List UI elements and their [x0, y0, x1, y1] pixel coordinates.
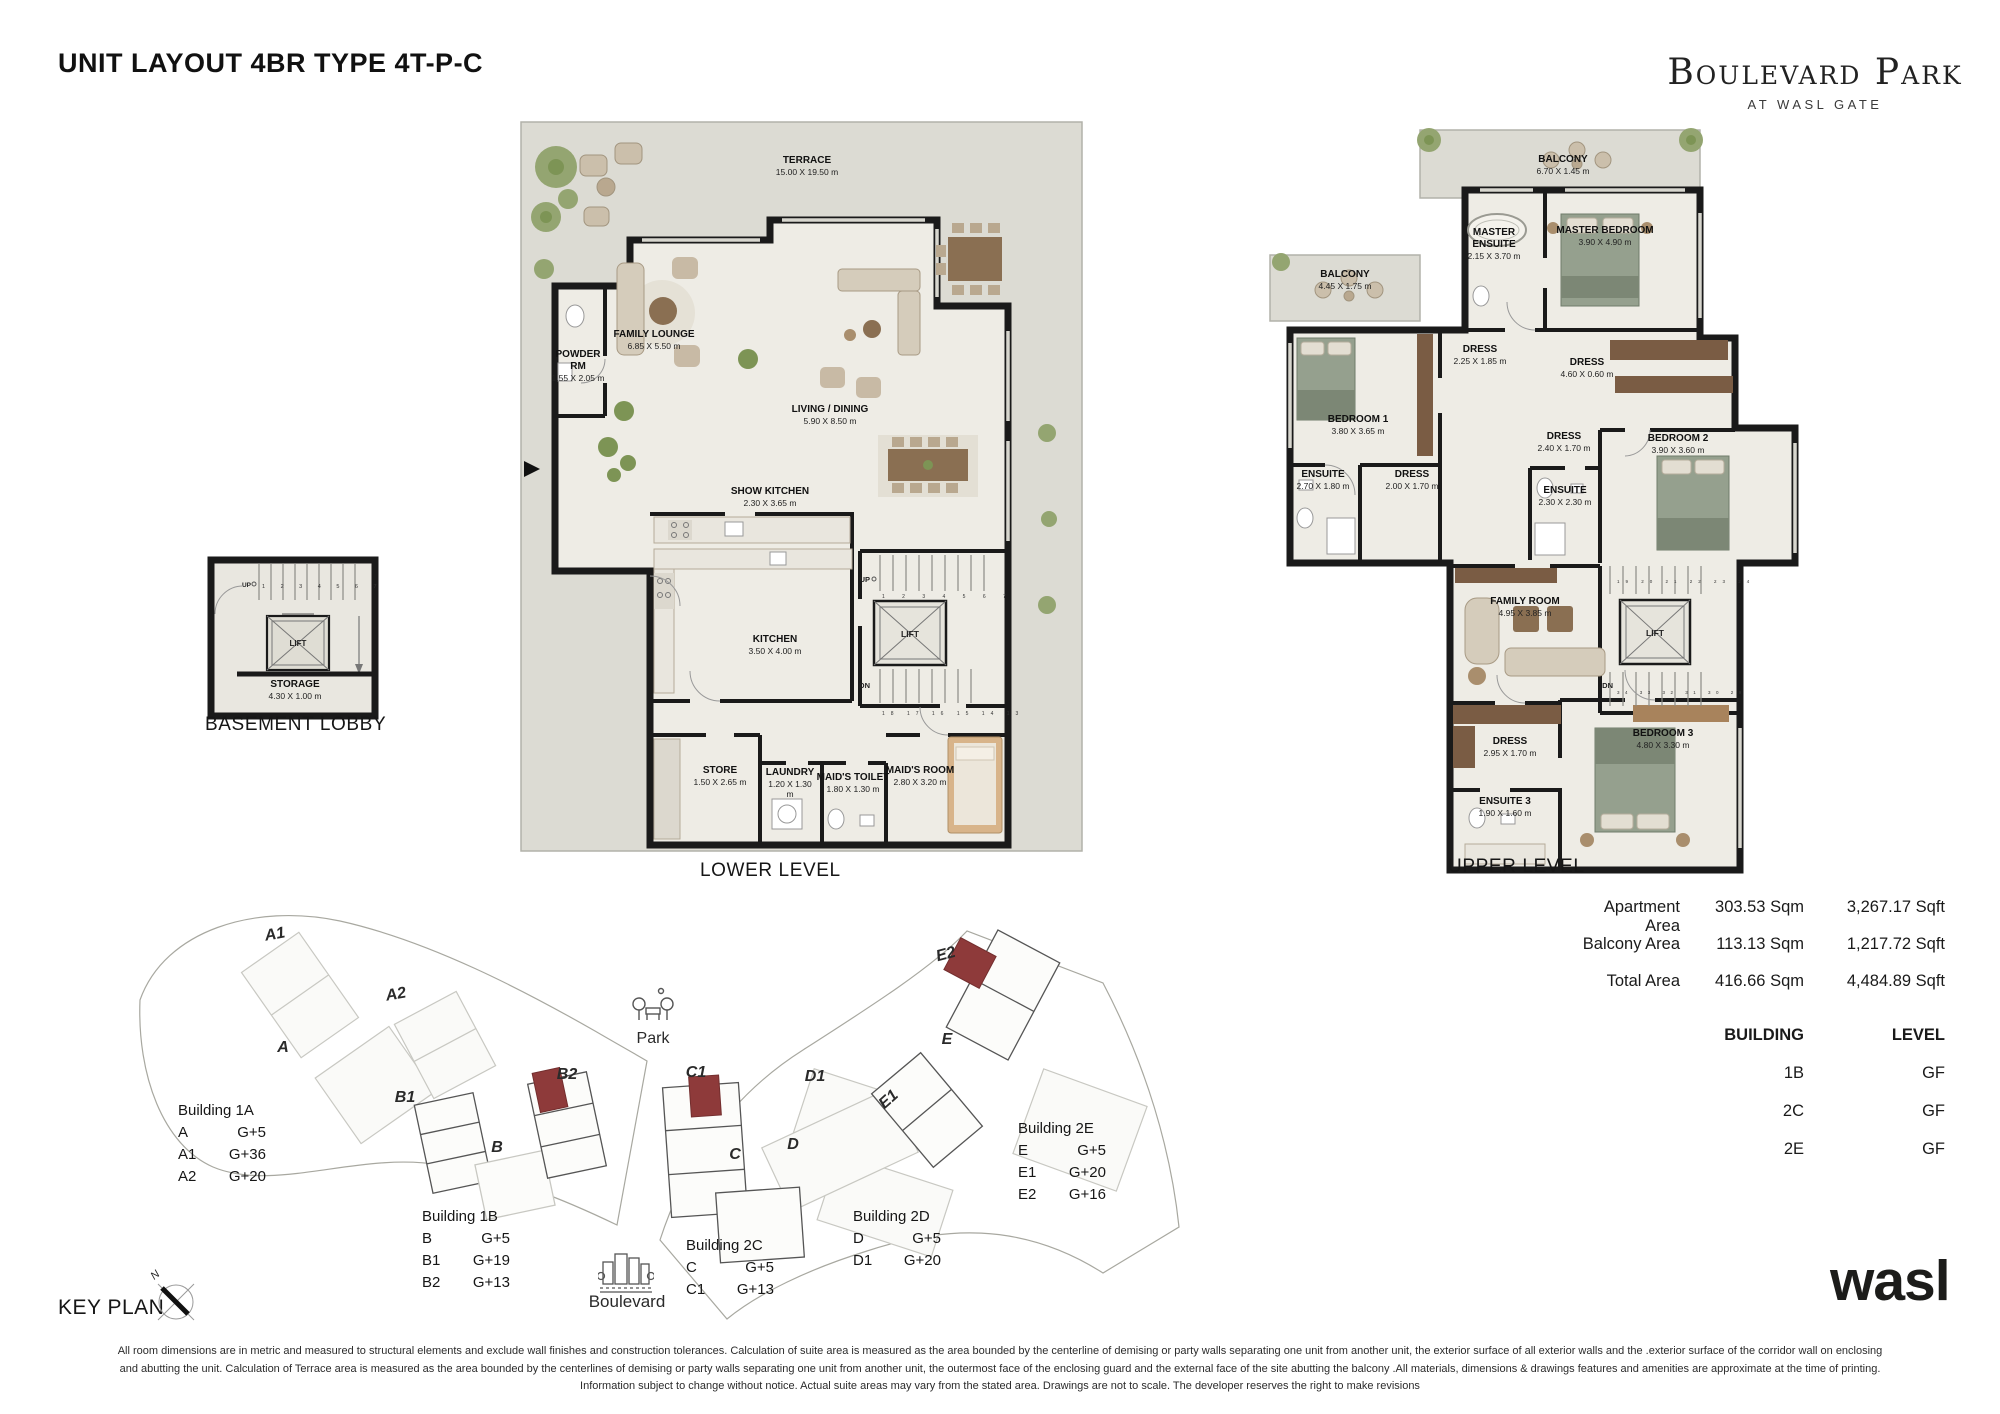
balcony-left-area	[1270, 255, 1420, 321]
map-label-d: D	[787, 1136, 799, 1154]
bed-1	[1297, 338, 1355, 420]
lift-label: LIFT	[901, 629, 920, 639]
laundry-washer	[772, 799, 802, 829]
north-label: N	[148, 1268, 162, 1282]
lower-level-drawing: 1 2 3 4 5 6 7 LIFT 18 17 16 15 14 13 UP …	[520, 121, 1083, 852]
lower-level-caption: LOWER LEVEL	[700, 860, 841, 882]
area-label: Total Area	[1580, 972, 1680, 991]
building-row: 2C GF	[1580, 1102, 1945, 1122]
map-label-e: E	[942, 1031, 953, 1049]
map-label-a2: A2	[384, 984, 407, 1005]
area-sqm: 113.13 Sqm	[1682, 935, 1804, 954]
disclaimer-line-2: and abutting the unit. Calculation of Te…	[40, 1361, 1960, 1379]
upper-dn-label: DN	[1602, 681, 1613, 690]
legend-title: Building 2E	[1018, 1118, 1106, 1140]
dn-label: DN	[859, 681, 870, 690]
map-label-b: B	[491, 1139, 503, 1157]
level-cell: GF	[1805, 1102, 1945, 1121]
legend-title: Building 2D	[853, 1206, 941, 1228]
area-row: Apartment Area 303.53 Sqm 3,267.17 Sqft	[1580, 898, 1945, 918]
area-sqft: 3,267.17 Sqft	[1805, 898, 1945, 917]
area-sqft: 1,217.72 Sqft	[1805, 935, 1945, 954]
store-shelf	[654, 739, 680, 839]
map-label-d1: D1	[805, 1068, 825, 1086]
compass-icon: N	[146, 1266, 202, 1326]
disclaimer-line-1: All room dimensions are in metric and me…	[40, 1343, 1960, 1361]
building-cell: 1B	[1682, 1064, 1804, 1083]
lower-level-plan: 1 2 3 4 5 6 7 LIFT 18 17 16 15 14 13 UP …	[520, 121, 1083, 852]
area-row: Total Area 416.66 Sqm 4,484.89 Sqft	[1580, 972, 1945, 992]
area-row: Balcony Area 113.13 Sqm 1,217.72 Sqft	[1580, 935, 1945, 955]
area-label: Apartment Area	[1580, 898, 1680, 936]
map-label-c: C	[729, 1146, 741, 1164]
page-title: UNIT LAYOUT 4BR TYPE 4T-P-C	[58, 48, 483, 79]
upper-level-drawing: 19 20 21 22 23 24 LIFT 34 33 32 31 30 29…	[1265, 128, 1800, 880]
legend-building-1a: Building 1A AG+5 A1G+36 A2G+20	[178, 1100, 266, 1188]
wasl-logo: wasl	[1830, 1248, 1950, 1314]
area-sqft: 4,484.89 Sqft	[1805, 972, 1945, 991]
brand-name: Boulevard Park	[1660, 52, 1970, 93]
legend-building-2e: Building 2E EG+5 E1G+20 E2G+16	[1018, 1118, 1106, 1206]
building-cell: 2C	[1682, 1102, 1804, 1121]
legend-title: Building 2C	[686, 1235, 774, 1257]
bed-3	[1580, 728, 1690, 847]
up-label: UP	[860, 575, 870, 584]
building-col-header: BUILDING	[1682, 1026, 1804, 1045]
level-col-header: LEVEL	[1805, 1026, 1945, 1045]
map-label-a: A	[277, 1039, 289, 1057]
basement-caption: BASEMENT LOBBY	[205, 714, 386, 736]
area-sqm: 416.66 Sqm	[1682, 972, 1804, 991]
floorplan-page: UNIT LAYOUT 4BR TYPE 4T-P-C Boulevard Pa…	[0, 0, 2000, 1414]
upper-stair-numbers-top: 19 20 21 22 23 24	[1617, 579, 1755, 584]
building-table-header: BUILDING LEVEL	[1580, 1026, 1945, 1046]
legend-title: Building 1A	[178, 1100, 266, 1122]
park-icon	[631, 986, 675, 1028]
map-label-b1: B1	[395, 1089, 415, 1107]
stair-numbers-up: 1 2 3 4 5 6 7	[882, 594, 1014, 600]
basement-drawing: 1 2 3 4 5 6 7 8 UP LIFT	[207, 556, 379, 720]
basement-lobby-plan: 1 2 3 4 5 6 7 8 UP LIFT STORAGE4.30 X 1.…	[207, 556, 379, 720]
level-cell: GF	[1805, 1064, 1945, 1083]
maids-bed	[948, 737, 1002, 833]
boulevard-label: Boulevard	[589, 1292, 666, 1312]
disclaimer: All room dimensions are in metric and me…	[40, 1343, 1960, 1396]
park-label: Park	[637, 1030, 670, 1048]
upper-level-plan: 19 20 21 22 23 24 LIFT 34 33 32 31 30 29…	[1265, 128, 1800, 880]
area-sqm: 303.53 Sqm	[1682, 898, 1804, 917]
disclaimer-line-3: Information subject to change without no…	[40, 1378, 1960, 1396]
show-kitchen-counter	[654, 517, 850, 543]
area-label: Balcony Area	[1580, 935, 1680, 954]
legend-title: Building 1B	[422, 1206, 510, 1228]
building-cell: 2E	[1682, 1140, 1804, 1159]
map-label-a1: A1	[263, 924, 286, 945]
building-row: 1B GF	[1580, 1064, 1945, 1084]
legend-building-1b: Building 1B BG+5 B1G+19 B2G+13	[422, 1206, 510, 1294]
basement-lift-label: LIFT	[290, 639, 307, 648]
basement-up-label: UP	[242, 582, 252, 589]
building-row: 2E GF	[1580, 1140, 1945, 1160]
legend-building-2d: Building 2D DG+5 D1G+20	[853, 1206, 941, 1272]
map-label-c1: C1	[686, 1064, 706, 1082]
bed-2	[1657, 456, 1729, 550]
upper-level-caption: UPPER LEVEL	[1448, 856, 1585, 878]
brand-subtitle: AT WASL GATE	[1660, 97, 1970, 112]
upper-lift-label: LIFT	[1646, 628, 1665, 638]
basement-stair-numbers: 1 2 3 4 5 6 7 8	[262, 584, 379, 590]
master-bed	[1547, 214, 1653, 306]
level-cell: GF	[1805, 1140, 1945, 1159]
stair-numbers-down: 18 17 16 15 14 13	[882, 711, 1024, 717]
brand-logo: Boulevard Park AT WASL GATE	[1660, 52, 1970, 112]
legend-building-2c: Building 2C CG+5 C1G+13	[686, 1235, 774, 1301]
boulevard-icon	[598, 1246, 654, 1294]
map-label-b2: B2	[557, 1066, 577, 1084]
